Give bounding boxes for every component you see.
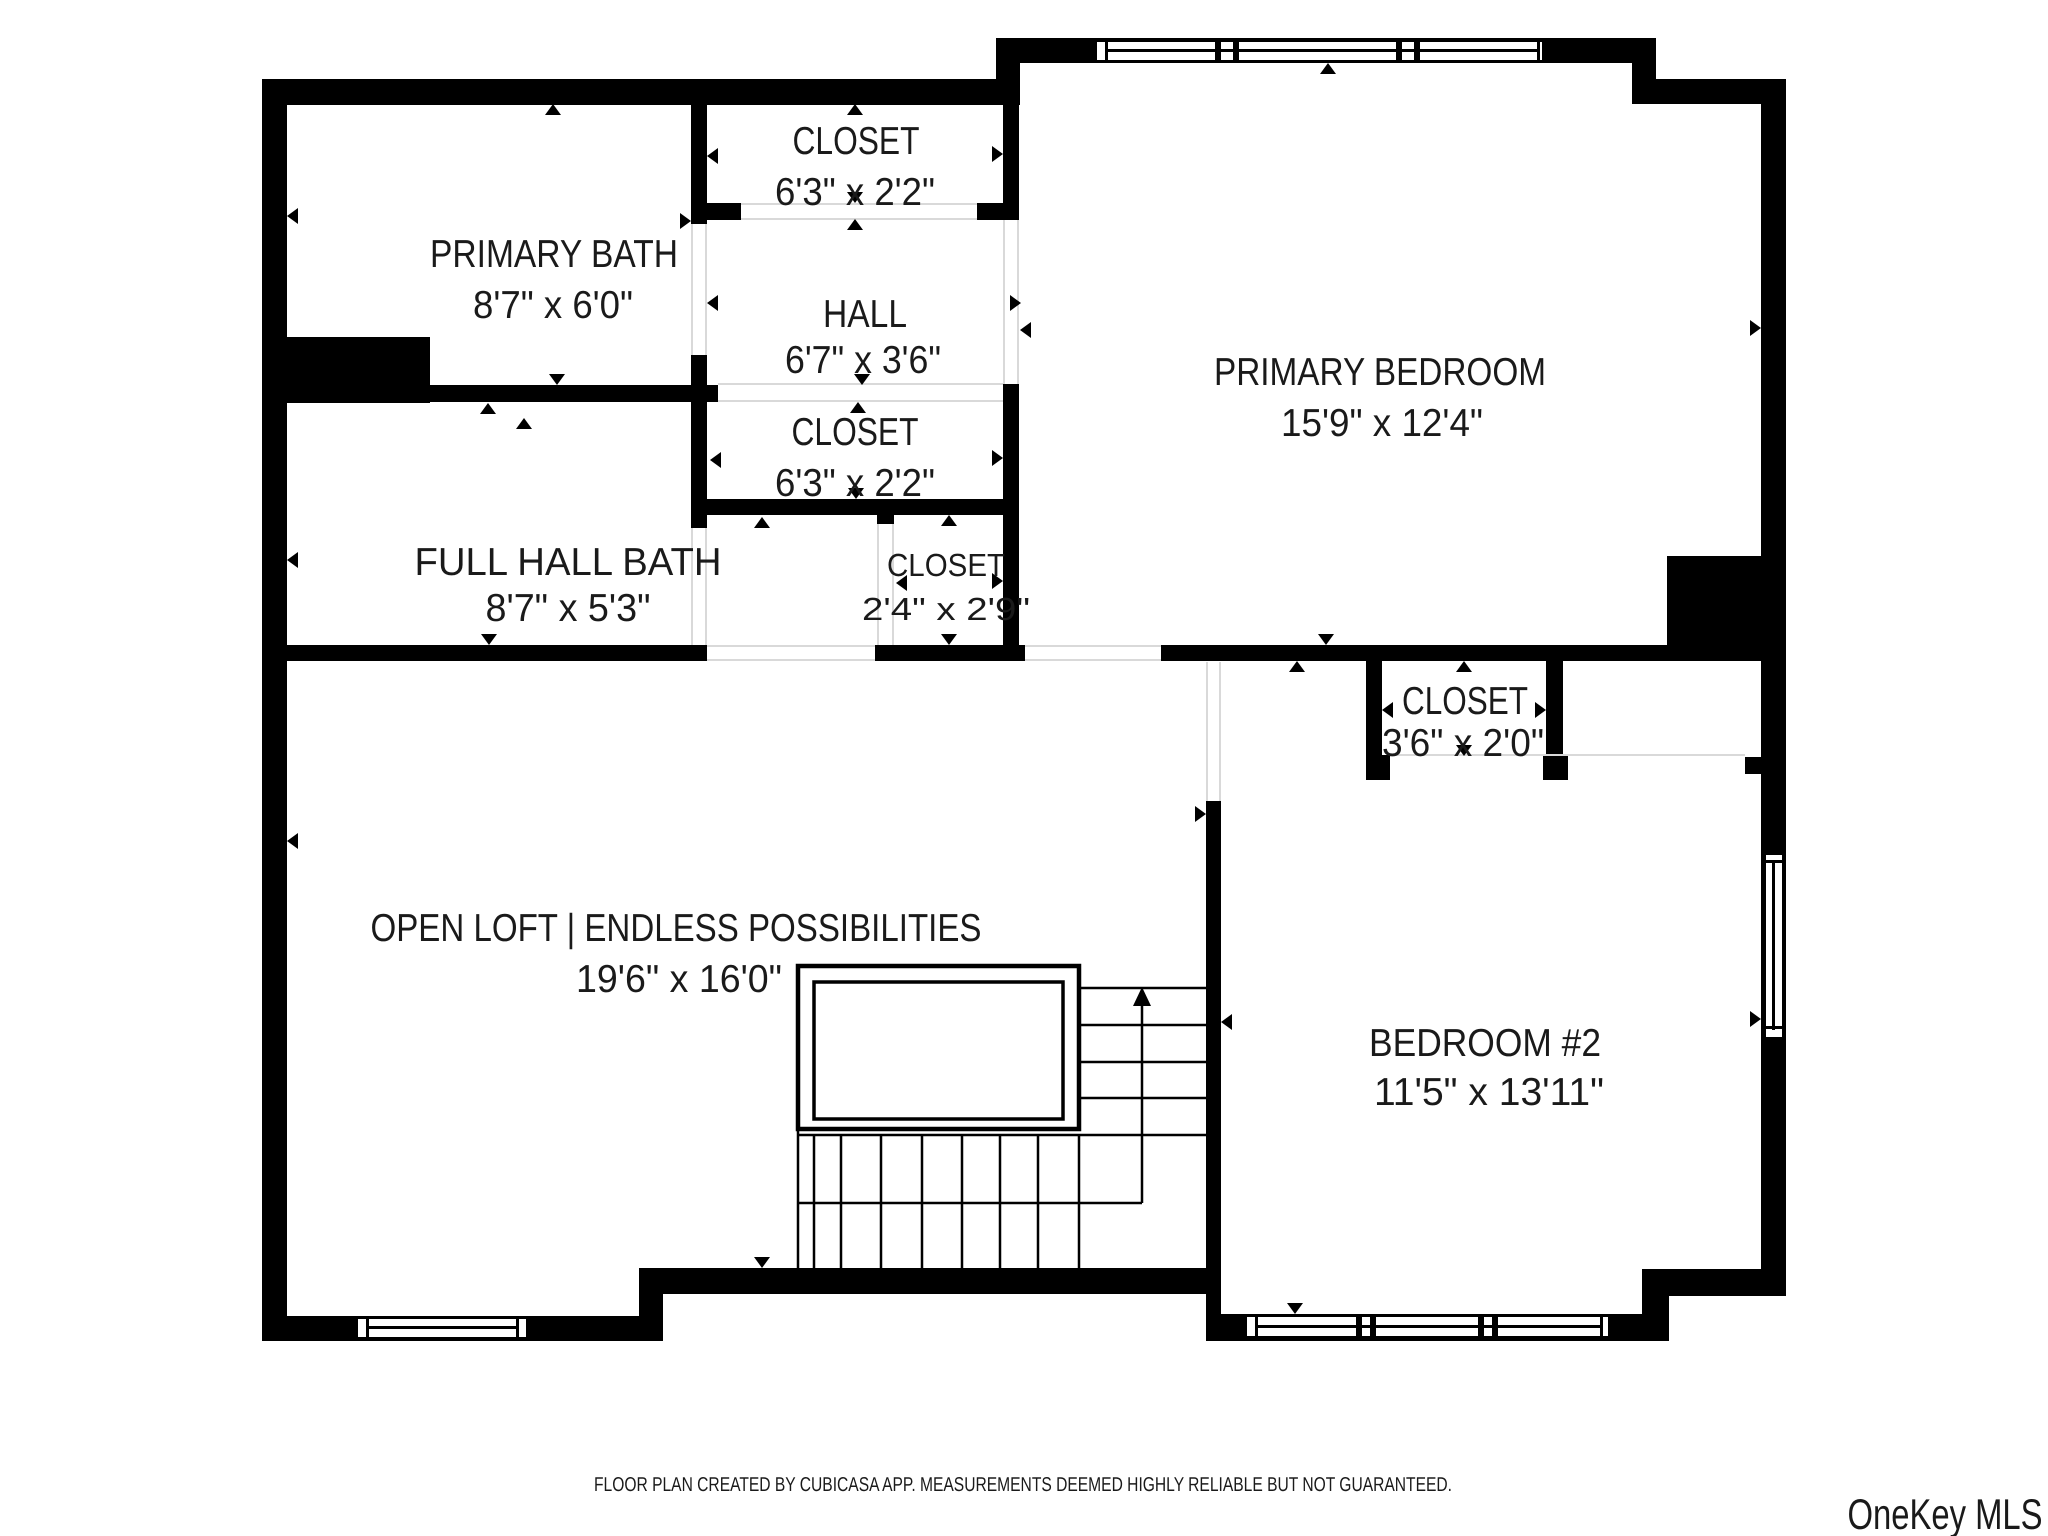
- svg-text:FULL HALL BATH: FULL HALL BATH: [415, 541, 722, 584]
- svg-text:HALL: HALL: [823, 293, 907, 336]
- svg-text:3'6" x 2'0": 3'6" x 2'0": [1382, 722, 1544, 765]
- svg-text:CLOSET: CLOSET: [792, 411, 919, 454]
- svg-text:6'7" x 3'6": 6'7" x 3'6": [785, 339, 941, 382]
- svg-text:8'7" x 6'0": 8'7" x 6'0": [473, 284, 633, 327]
- svg-text:6'3" x 2'2": 6'3" x 2'2": [775, 171, 935, 214]
- svg-text:OPEN LOFT | ENDLESS POSSIBILIT: OPEN LOFT | ENDLESS POSSIBILITIES: [371, 907, 982, 950]
- svg-text:19'6" x 16'0": 19'6" x 16'0": [576, 958, 782, 1001]
- svg-text:PRIMARY BATH: PRIMARY BATH: [430, 233, 678, 276]
- svg-text:PRIMARY BEDROOM: PRIMARY BEDROOM: [1214, 351, 1546, 394]
- svg-text:FLOOR PLAN CREATED BY CUBICASA: FLOOR PLAN CREATED BY CUBICASA APP. MEAS…: [594, 1474, 1452, 1496]
- svg-text:8'7" x 5'3": 8'7" x 5'3": [486, 587, 651, 630]
- svg-text:OneKey MLS: OneKey MLS: [1848, 1491, 2043, 1536]
- svg-text:2'4" x 2'9": 2'4" x 2'9": [862, 591, 1030, 627]
- svg-text:CLOSET: CLOSET: [793, 120, 920, 163]
- svg-text:BEDROOM #2: BEDROOM #2: [1369, 1022, 1601, 1065]
- svg-text:11'5" x 13'11": 11'5" x 13'11": [1374, 1071, 1604, 1114]
- svg-text:15'9" x 12'4": 15'9" x 12'4": [1281, 402, 1483, 445]
- svg-text:CLOSET: CLOSET: [1402, 680, 1528, 723]
- svg-text:CLOSET: CLOSET: [887, 547, 1005, 583]
- svg-text:6'3" x 2'2": 6'3" x 2'2": [775, 462, 935, 505]
